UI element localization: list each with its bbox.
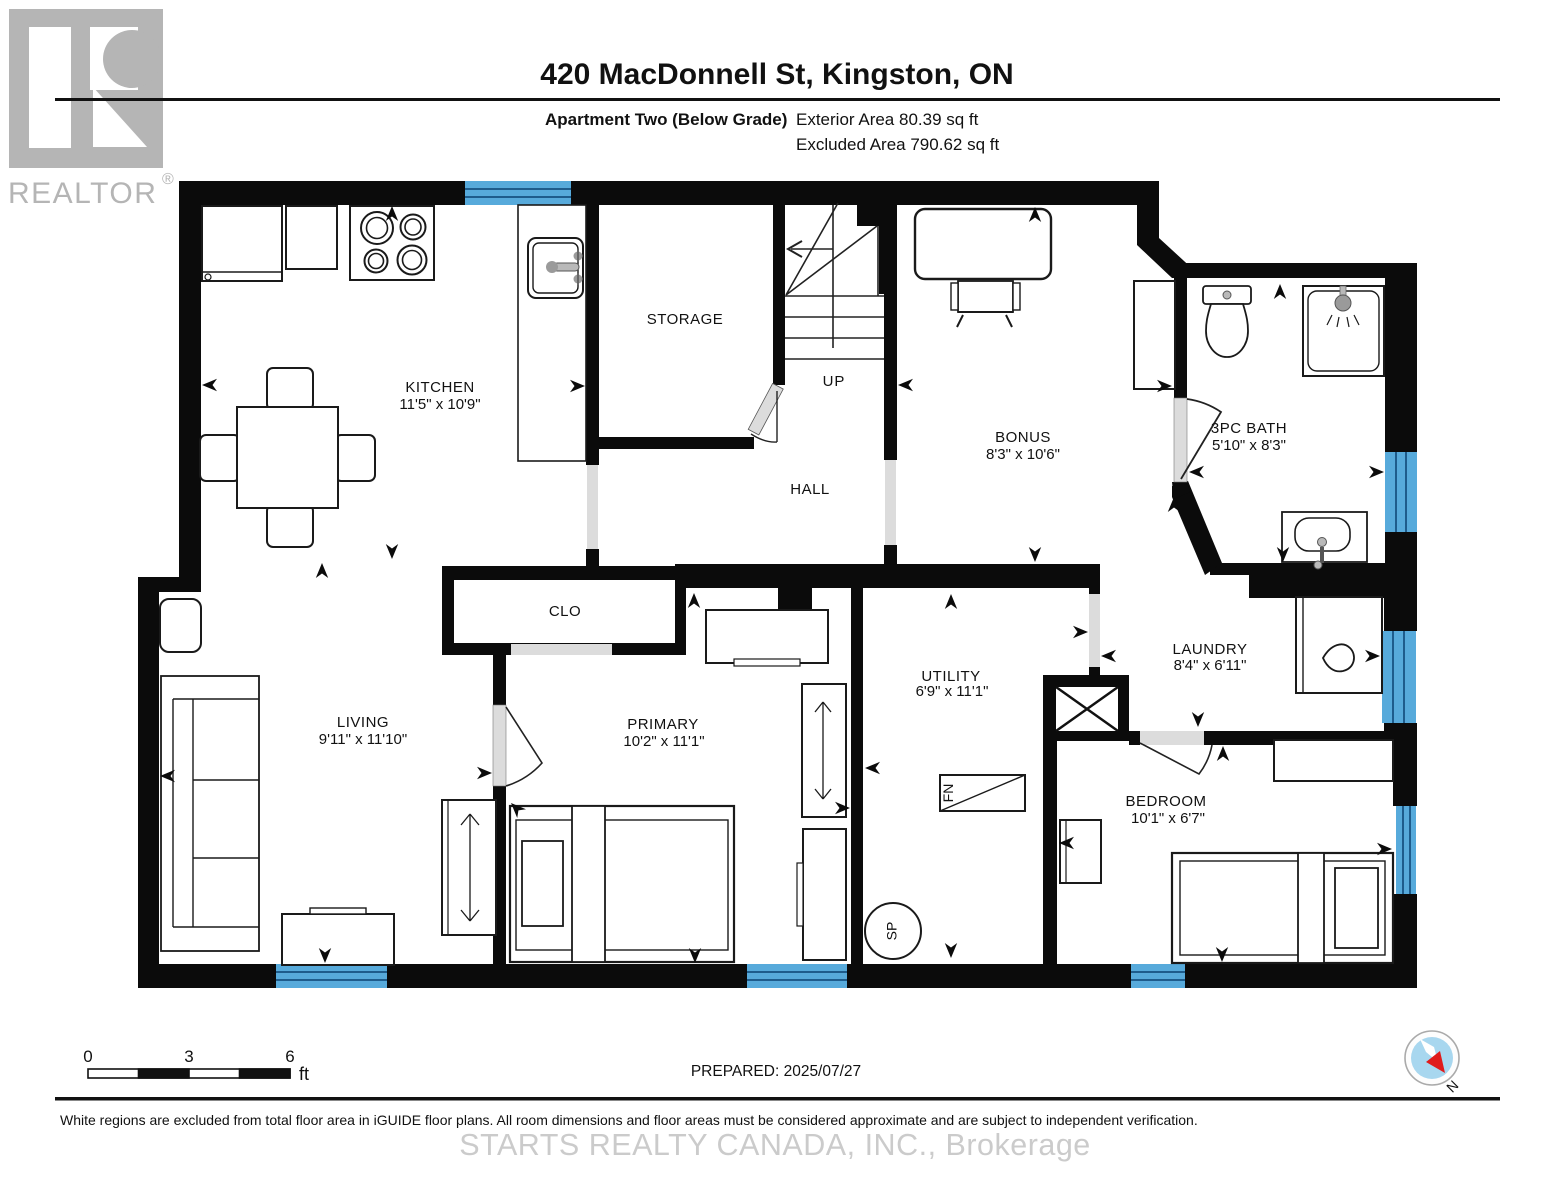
svg-text:KITCHEN: KITCHEN — [405, 379, 474, 396]
svg-text:®: ® — [162, 171, 174, 188]
svg-text:BONUS: BONUS — [995, 429, 1051, 446]
svg-text:White regions are excluded fro: White regions are excluded from total fl… — [60, 1112, 1198, 1128]
svg-text:FN: FN — [940, 784, 956, 803]
svg-text:3PC BATH: 3PC BATH — [1211, 420, 1287, 437]
svg-text:CLO: CLO — [549, 603, 581, 620]
svg-text:Exterior Area 80.39 sq ft: Exterior Area 80.39 sq ft — [796, 110, 979, 129]
svg-text:PREPARED: 2025/07/27: PREPARED: 2025/07/27 — [691, 1063, 861, 1080]
svg-text:10'1" x 6'7": 10'1" x 6'7" — [1131, 810, 1205, 827]
svg-text:SP: SP — [884, 922, 900, 941]
svg-text:420 MacDonnell St, Kingston, O: 420 MacDonnell St, Kingston, ON — [540, 58, 1013, 91]
svg-text:8'3" x 10'6": 8'3" x 10'6" — [986, 446, 1060, 463]
svg-text:11'5" x 10'9": 11'5" x 10'9" — [399, 396, 480, 413]
svg-text:HALL: HALL — [790, 481, 830, 498]
svg-text:8'4" x 6'11": 8'4" x 6'11" — [1174, 657, 1247, 674]
svg-text:9'11" x 11'10": 9'11" x 11'10" — [319, 731, 407, 748]
svg-text:BEDROOM: BEDROOM — [1125, 793, 1206, 810]
svg-text:6: 6 — [285, 1047, 294, 1066]
svg-text:ft: ft — [299, 1064, 309, 1084]
svg-text:6'9" x 11'1": 6'9" x 11'1" — [916, 683, 989, 700]
svg-text:REALTOR: REALTOR — [8, 177, 157, 210]
svg-text:LIVING: LIVING — [337, 714, 389, 731]
svg-text:3: 3 — [184, 1047, 193, 1066]
svg-text:UP: UP — [823, 373, 846, 390]
svg-text:0: 0 — [83, 1047, 92, 1066]
svg-text:STARTS REALTY CANADA, INC., Br: STARTS REALTY CANADA, INC., Brokerage — [459, 1128, 1091, 1162]
svg-text:10'2" x 11'1": 10'2" x 11'1" — [623, 733, 704, 750]
svg-text:5'10" x 8'3": 5'10" x 8'3" — [1212, 437, 1286, 454]
svg-text:LAUNDRY: LAUNDRY — [1173, 641, 1248, 658]
svg-text:Excluded Area 790.62 sq ft: Excluded Area 790.62 sq ft — [796, 135, 999, 154]
svg-text:PRIMARY: PRIMARY — [627, 716, 699, 733]
svg-text:STORAGE: STORAGE — [647, 311, 724, 328]
svg-text:Apartment Two (Below Grade): Apartment Two (Below Grade) — [545, 110, 787, 129]
